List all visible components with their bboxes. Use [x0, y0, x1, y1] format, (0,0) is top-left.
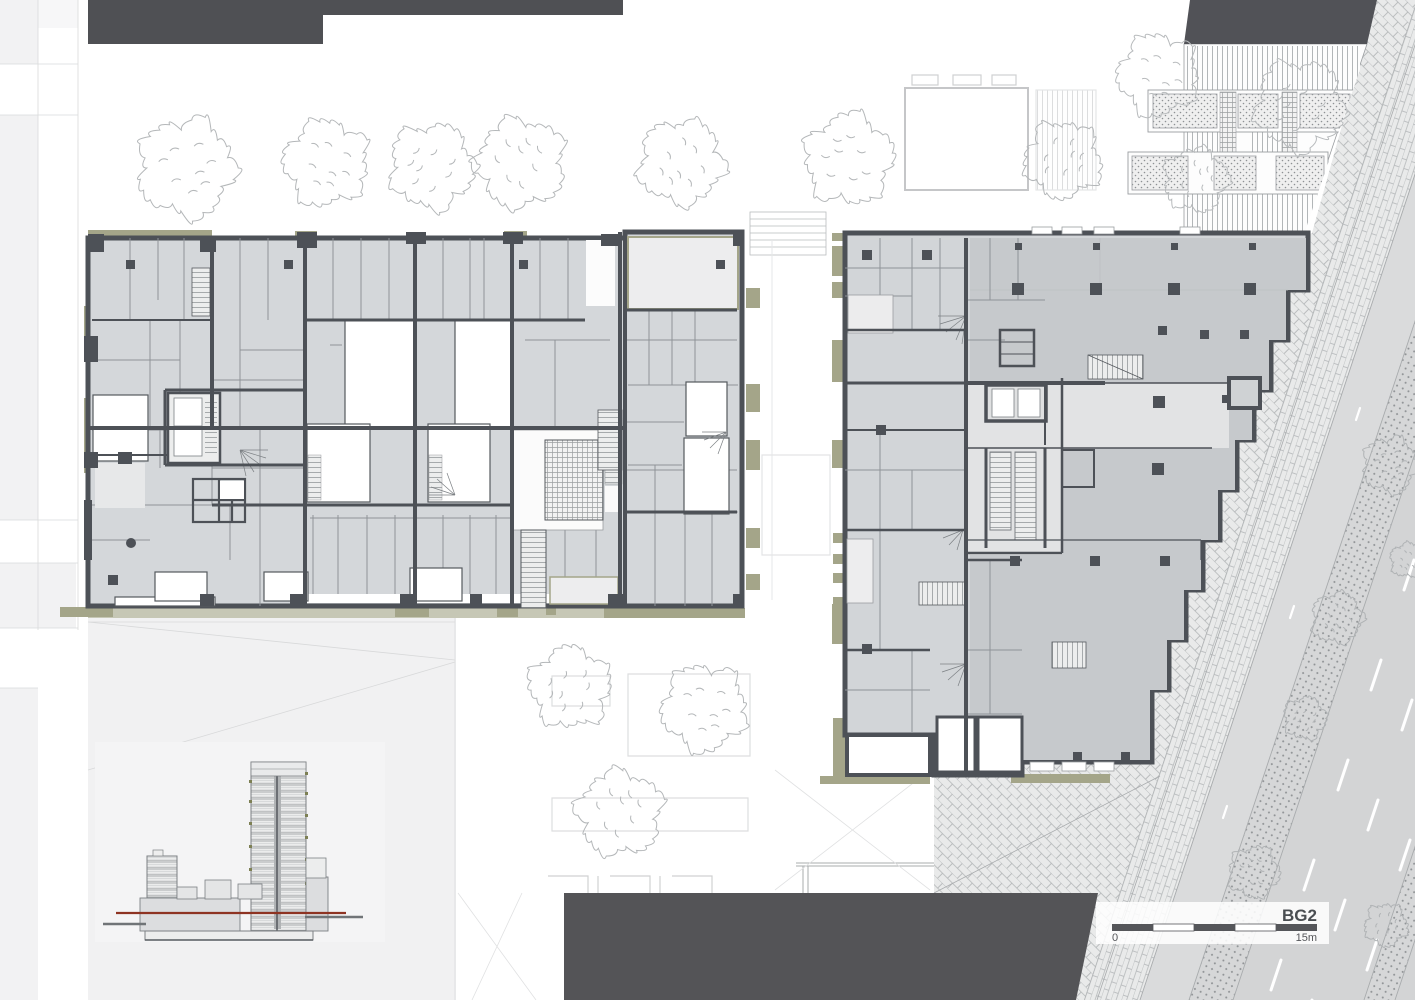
svg-text:0: 0	[1112, 932, 1118, 944]
svg-text:BG2: BG2	[1282, 906, 1317, 925]
svg-text:15m: 15m	[1296, 932, 1317, 944]
